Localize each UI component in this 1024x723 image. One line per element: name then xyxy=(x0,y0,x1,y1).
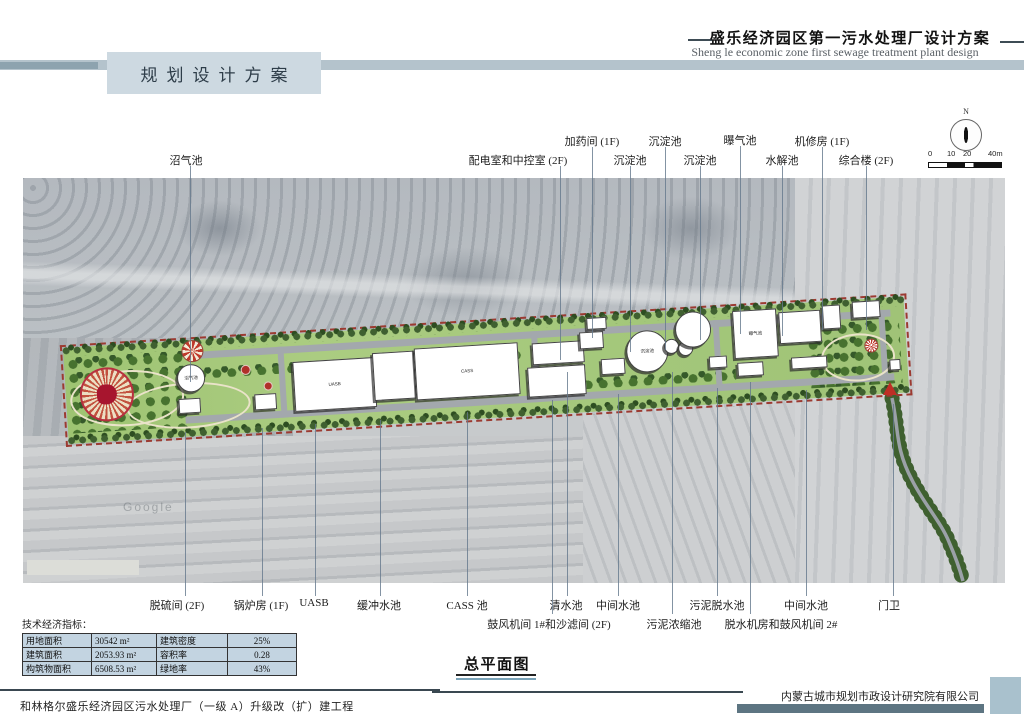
plan-callout-label: 门卫 xyxy=(878,597,900,613)
indicator-cell: 6508.53 m² xyxy=(92,662,157,676)
title-dash-right xyxy=(1000,41,1024,43)
plan-callout-label: 污泥脱水池 xyxy=(690,597,745,613)
plan-callout-label: 沼气池 xyxy=(170,152,203,168)
plan-callout-label: CASS 池 xyxy=(446,597,487,613)
cass-pool-label: CASS xyxy=(461,369,474,374)
indicator-cell: 2053.93 m² xyxy=(92,648,157,662)
sediment-tank-1: 沉淀池 xyxy=(625,329,669,373)
cass-pool: CASS xyxy=(414,342,521,400)
indicator-table-block: 技术经济指标： 用地面积30542 m²建筑密度25%建筑面积2053.93 m… xyxy=(22,616,297,676)
biogas-pond-label: 沼气池 xyxy=(184,376,198,381)
drawing-sheet: 规划设计方案 盛乐经济园区第一污水处理厂设计方案 Sheng le econom… xyxy=(0,0,1024,723)
indicator-cell: 建筑面积 xyxy=(23,648,92,662)
plan-callout-label: 缓冲水池 xyxy=(357,597,401,613)
clear-water-pool xyxy=(579,331,604,349)
project-name: 和林格尔盛乐经济园区污水处理厂（一级 A）升级改（扩）建工程 xyxy=(20,698,354,714)
indicator-table-title: 技术经济指标： xyxy=(22,616,297,631)
gatehouse xyxy=(889,359,901,371)
section-title: 规划设计方案 xyxy=(141,61,297,86)
indicator-cell: 43% xyxy=(228,662,297,676)
header-band-accent xyxy=(0,62,98,69)
plan-callout-label: 污泥浓缩池 xyxy=(647,616,702,632)
footer-rule-right xyxy=(432,691,743,693)
footer-rule-left xyxy=(0,689,440,691)
fan-ornament xyxy=(181,339,204,362)
drawing-name: 总平面图 xyxy=(464,653,530,674)
plan-callout-label: 沉淀池 xyxy=(684,152,717,168)
indicator-table: 用地面积30542 m²建筑密度25%建筑面积2053.93 m²容积率0.28… xyxy=(22,633,297,676)
plaza-core xyxy=(96,384,117,405)
plan-callout-label: 清水池 xyxy=(550,597,583,613)
scale-bar-rule xyxy=(928,162,1002,168)
indicator-row: 用地面积30542 m²建筑密度25% xyxy=(23,634,297,648)
uasb-tank: UASB xyxy=(292,357,377,412)
mid-water-pool-2 xyxy=(791,355,828,369)
scale-bar: 0102040m xyxy=(928,149,1002,169)
mid-water-pool-1 xyxy=(601,358,626,375)
footer-bar xyxy=(737,704,984,713)
power-control-room xyxy=(532,340,585,365)
boiler-room xyxy=(254,393,277,410)
indicator-cell: 容积率 xyxy=(157,648,228,662)
complex-building xyxy=(852,300,881,319)
blower1-sandfilter xyxy=(527,364,587,397)
indicator-cell: 0.28 xyxy=(228,648,297,662)
section-title-box: 规划设计方案 xyxy=(107,52,321,94)
plan-callout-label: 沉淀池 xyxy=(614,152,647,168)
plan-callout-label: 脱水机房和鼓风机间 2# xyxy=(725,616,838,632)
site-plan-map: Google 沼气池UASBCASS沉淀池曝气池 xyxy=(23,178,1005,583)
plan-callout-label: 水解池 xyxy=(766,152,799,168)
aeration-tank-label: 曝气池 xyxy=(749,331,763,336)
plan-callout-label: 锅炉房 (1F) xyxy=(234,597,289,613)
plan-callout-label: 配电室和中控室 (2F) xyxy=(469,152,568,168)
plan-callout-label: 鼓风机间 1#和沙滤间 (2F) xyxy=(487,616,610,632)
plan-callout-label: 中间水池 xyxy=(596,597,640,613)
indicator-cell: 绿地率 xyxy=(157,662,228,676)
compass-icon xyxy=(950,119,982,151)
indicator-cell: 构筑物面积 xyxy=(23,662,92,676)
dosing-room xyxy=(586,317,607,330)
plan-callout-label: 机修房 (1F) xyxy=(795,133,850,149)
red-feature-2 xyxy=(263,381,273,391)
aeration-tank: 曝气池 xyxy=(732,308,779,359)
company-name: 内蒙古城市规划市政设计研究院有限公司 xyxy=(760,688,1000,704)
scale-tick-label: 0 xyxy=(928,149,932,158)
plan-callout-label: 中间水池 xyxy=(784,597,828,613)
uasb-tank-label: UASB xyxy=(328,382,341,387)
sediment-tank-1-label: 沉淀池 xyxy=(640,349,654,354)
sheet-title-en: Sheng le economic zone first sewage trea… xyxy=(655,45,1015,60)
entrance-arrow-icon xyxy=(883,382,897,395)
indicator-cell: 25% xyxy=(228,634,297,648)
sludge-thickener-1 xyxy=(664,338,680,354)
desulfur-room xyxy=(178,398,201,414)
footer-corner-square xyxy=(990,677,1021,714)
indicator-cell: 用地面积 xyxy=(23,634,92,648)
hydrolysis-tank xyxy=(778,310,822,345)
compass-needle-icon xyxy=(963,122,970,148)
indicator-cell: 建筑密度 xyxy=(157,634,228,648)
scale-tick-label: 20 xyxy=(963,149,971,158)
drawing-name-underline xyxy=(456,674,536,676)
plan-callout-label: 曝气池 xyxy=(724,132,757,148)
plan-callout-label: UASB xyxy=(299,597,328,609)
scale-tick-label: 40m xyxy=(988,149,1003,158)
dewater-blower2-room xyxy=(737,361,764,377)
indicator-row: 建筑面积2053.93 m²容积率0.28 xyxy=(23,648,297,662)
scale-tick-label: 10 xyxy=(947,149,955,158)
drawing-name-underline-accent xyxy=(456,678,536,680)
plan-callout-label: 沉淀池 xyxy=(649,133,682,149)
plan-callout-label: 脱硫间 (2F) xyxy=(150,597,205,613)
buffer-pool xyxy=(372,351,417,401)
sludge-dewater-pool xyxy=(709,355,728,368)
repair-room xyxy=(822,304,841,329)
plan-callout-label: 综合楼 (2F) xyxy=(839,152,894,168)
indicator-row: 构筑物面积6508.53 m²绿地率43% xyxy=(23,662,297,676)
indicator-cell: 30542 m² xyxy=(92,634,157,648)
plan-callout-label: 加药间 (1F) xyxy=(565,133,620,149)
internal-road-cross-1 xyxy=(277,347,287,418)
compass-north-label: N xyxy=(957,107,975,116)
